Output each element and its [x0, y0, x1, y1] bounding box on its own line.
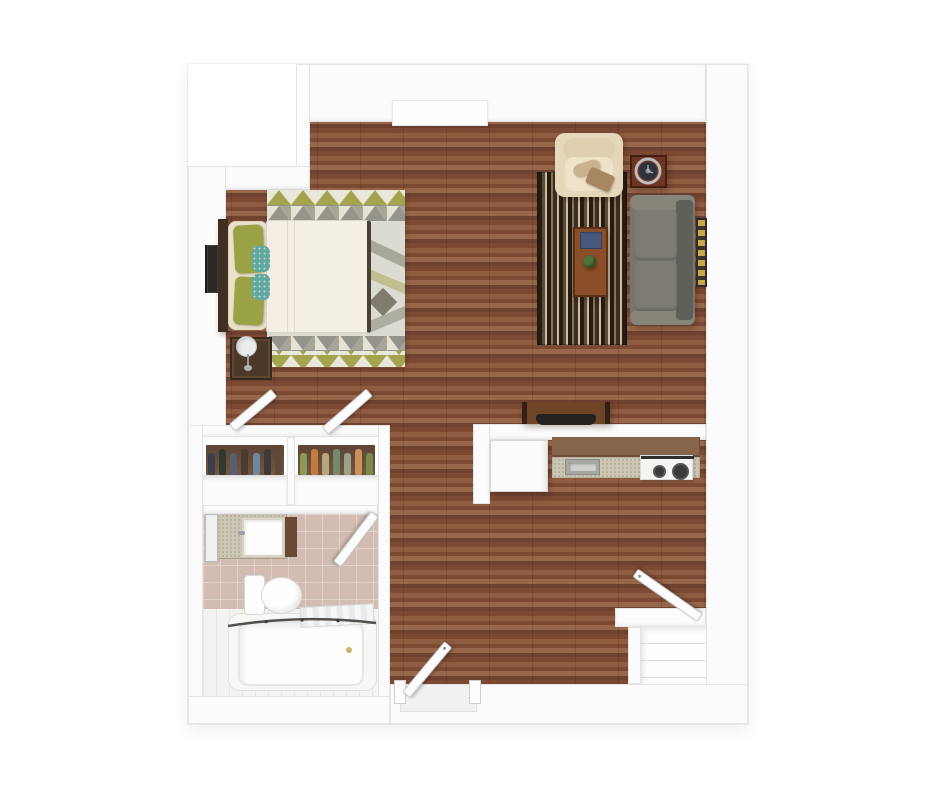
- entry-closet-wall-left: [628, 627, 641, 684]
- floor-plan-render: [0, 0, 940, 788]
- wall-tv: [205, 245, 218, 293]
- wall-art: [696, 218, 707, 287]
- book: [580, 232, 602, 249]
- sofa-backrest: [676, 200, 693, 320]
- sink-basin: [569, 463, 596, 471]
- side-table: [630, 155, 667, 188]
- desk-chair: [536, 414, 596, 425]
- clothing-item: [275, 453, 282, 475]
- bathroom-mirror: [205, 514, 218, 562]
- clothing-item: [333, 449, 340, 475]
- clothing-item: [322, 453, 329, 475]
- clothing-item: [355, 449, 362, 475]
- bed-headboard: [218, 219, 228, 332]
- closet-bath-wall: [203, 505, 378, 514]
- stove-burner: [653, 465, 666, 478]
- clothing-item: [208, 453, 215, 475]
- duvet-fold: [294, 221, 295, 332]
- closet-left-shelf: [203, 475, 287, 506]
- block-bottom-wall: [188, 696, 390, 724]
- bed-duvet: [266, 220, 371, 333]
- lamp-base: [244, 365, 252, 371]
- vanity-sink: [242, 518, 284, 557]
- wall-art-canvas: [698, 220, 705, 285]
- toilet-bowl: [261, 577, 302, 614]
- plant: [583, 255, 596, 268]
- closet-right-clothes: [298, 445, 375, 475]
- kitchen-half-wall-return: [473, 424, 490, 504]
- bathtub-drain: [346, 647, 352, 653]
- upper-cabinets: [552, 437, 700, 457]
- sofa-cushion: [634, 261, 677, 311]
- clothing-item: [241, 449, 248, 475]
- vanity-faucet: [238, 531, 245, 535]
- refrigerator: [490, 440, 548, 492]
- clothing-item: [230, 453, 237, 475]
- wall-right: [706, 64, 748, 724]
- apartment-plan: [188, 64, 748, 724]
- block-left-wall: [188, 425, 203, 724]
- pillow-teal-top: [252, 246, 270, 272]
- entry-door-post: [469, 680, 481, 704]
- kitchen-sink: [565, 459, 600, 475]
- duvet-fold: [287, 221, 288, 332]
- wall-top: [296, 64, 706, 122]
- clothing-item: [253, 453, 260, 475]
- sofa: [630, 195, 695, 325]
- armchair: [555, 133, 623, 197]
- clothing-item: [344, 453, 351, 475]
- clothing-item: [366, 453, 373, 475]
- vanity-cabinet-side: [285, 517, 297, 557]
- pillow-teal-bottom: [252, 274, 270, 300]
- clothing-item: [311, 449, 318, 475]
- stove: [640, 455, 693, 480]
- sofa-cushion: [634, 210, 677, 260]
- clothing-item: [264, 449, 271, 475]
- closet-top-wall: [188, 425, 390, 437]
- clothing-item: [219, 449, 226, 475]
- stove-back-edge: [641, 456, 694, 459]
- shower-rod: [226, 613, 378, 631]
- clothing-item: [300, 453, 307, 475]
- closet-divider-wall: [287, 437, 295, 505]
- window-sill: [392, 100, 488, 126]
- closet-left-clothes: [206, 445, 284, 475]
- coffee-table: [573, 227, 608, 297]
- stove-burner: [672, 463, 689, 480]
- closet-right-shelf: [295, 475, 378, 506]
- block-right-wall: [378, 425, 390, 724]
- table-clock: [632, 157, 665, 186]
- entry-closet-shelves: [641, 627, 706, 684]
